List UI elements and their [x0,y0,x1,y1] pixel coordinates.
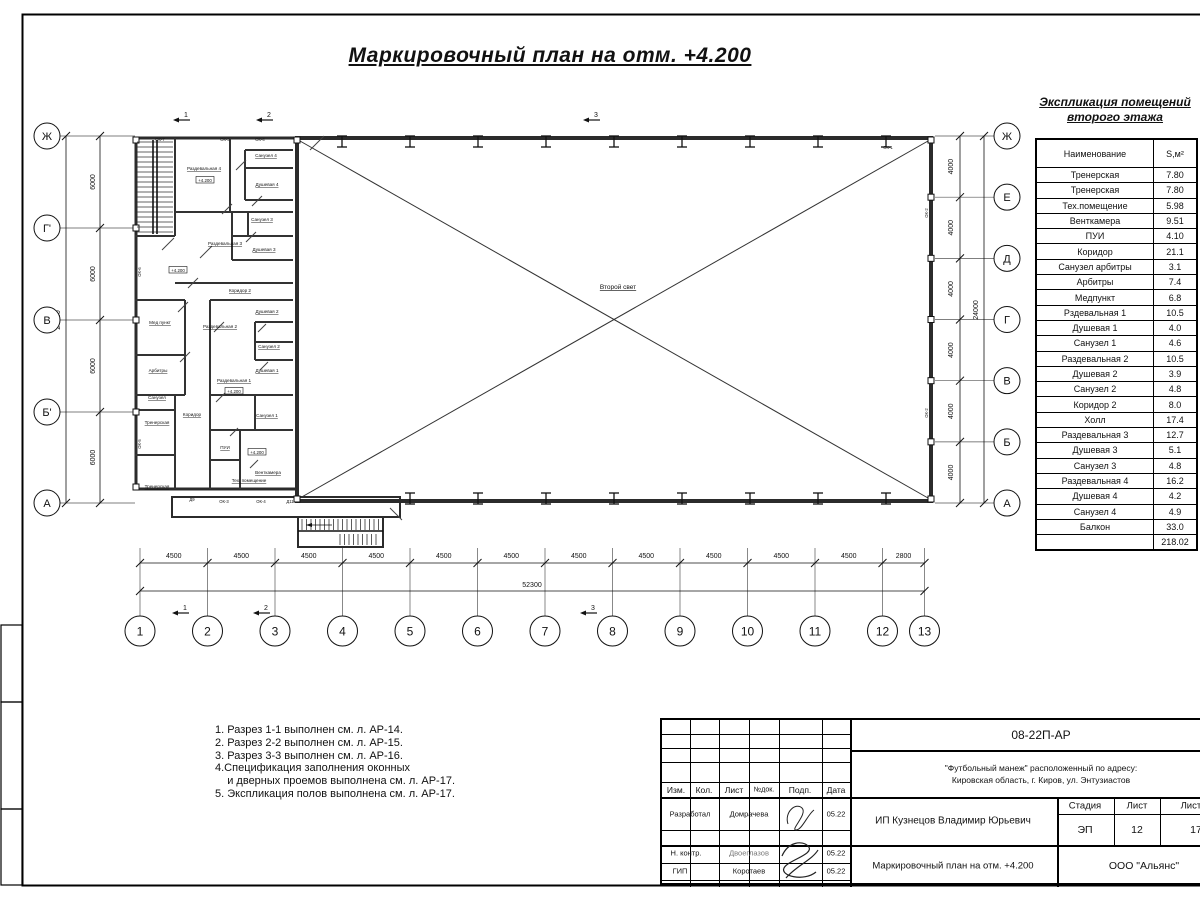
room-area-cell: 8.0 [1154,397,1198,412]
room-name-cell: Душевая 2 [1036,366,1154,381]
dim-label: 2800 [896,553,912,560]
opening-tag: ОК-2 [924,208,929,218]
opening-tag: ОК-2 [924,408,929,418]
axis-bubble-bottom-label: 9 [677,624,684,638]
axis-bubble-left-label: А [43,498,51,510]
tb-address-line1: "Футбольный манеж" расположенный по адре… [945,763,1138,773]
dim-label: 6000 [90,358,97,374]
level-mark: +4.200 [171,268,185,273]
room-label: Санузел 4 [255,153,277,158]
tb-col-list: Лист [725,785,743,795]
wall-column-square [928,194,934,200]
section-marker-number: 3 [591,605,595,612]
wall-column-square [928,137,934,143]
dim-label: 4000 [948,159,955,175]
dim-label: 4000 [948,465,955,481]
room-area-cell: 7.80 [1154,168,1198,183]
hall-label: Второй свет [600,283,636,291]
room-name-cell: Тех.помещение [1036,198,1154,213]
dim-label: 4500 [638,553,654,560]
section-marker-number: 1 [184,112,188,119]
explication-row: Тех.помещение5.98 [1036,198,1197,213]
room-label: Венткамера [255,470,281,475]
dim-label: 4500 [436,553,452,560]
tb-sheets-label: Листов [1181,801,1200,812]
section-marker-number: 3 [594,112,598,119]
wall-column-square [294,496,300,502]
note-line: 3. Разрез 3-3 выполнен см. л. АР-16. [215,750,455,763]
room-area-cell: 3.1 [1154,259,1198,274]
room-name-cell: Тренерская [1036,168,1154,183]
axis-bubble-right-label: Б [1003,437,1010,449]
wall-column-square [928,496,934,502]
opening-tag: ОК-4 [256,499,266,504]
axis-bubble-right-label: В [1003,376,1010,388]
opening-tag: ОК-5 [137,439,142,449]
axis-bubble-bottom-label: 7 [542,624,549,638]
room-area-cell: 4.2 [1154,489,1198,504]
explication-title-line2: второго этажа [1030,110,1200,125]
room-name-cell: Тренерская [1036,183,1154,198]
axis-bubble-right-label: Ж [1002,131,1012,143]
room-label: Коридор [183,412,202,417]
axis-bubble-right-label: Г [1004,314,1010,326]
room-area-cell: 5.1 [1154,443,1198,458]
tb-client: ИП Кузнецов Владимир Юрьевич [875,816,1031,827]
room-label: Арбитры [149,368,168,373]
tb-stage-label: Стадия [1069,801,1101,812]
wall-column-square [133,225,139,231]
dim-label: 4000 [948,403,955,419]
room-name-cell: Душевая 1 [1036,320,1154,335]
room-area-cell: 3.9 [1154,366,1198,381]
tb-col-ndoc: №док. [754,787,775,794]
level-mark: +4.200 [250,450,264,455]
tb-col-podp: Подп. [789,785,812,795]
explication-title-line1: Экспликация помещений [1030,95,1200,110]
signature-checker [778,838,822,884]
room-label: Раздевальная 1 [217,378,252,383]
tb-role-0: Разработал [670,810,711,819]
wall-column-square [928,317,934,323]
explication-row: Санузел 24.8 [1036,382,1197,397]
room-label: Душевая 3 [252,247,275,252]
dim-label: 4500 [166,553,182,560]
section-marker-arrow [172,611,178,616]
dim-label: 4500 [368,553,384,560]
explication-row: Раздевальная 210.5 [1036,351,1197,366]
room-label: Душевая 4 [255,182,278,187]
wall-column-square [133,409,139,415]
explication-row: Венткамера9.51 [1036,213,1197,228]
explication-row: Раздевальная 312.7 [1036,428,1197,443]
tb-role-1: Н. контр. [671,849,702,858]
room-label: Душевая 1 [255,368,278,373]
tb-address-line2: Кировская область, г. Киров, ул. Энтузиа… [952,775,1130,785]
room-area-cell: 7.4 [1154,275,1198,290]
tb-stage-value: ЭП [1077,824,1092,836]
room-name-cell: Коридор 2 [1036,397,1154,412]
tb-col-izm: Изм. [667,785,685,795]
axis-bubble-left-label: В [43,315,50,327]
explication-header-name: Наименование [1036,139,1154,168]
door-swings [162,136,402,520]
opening-tag: ОК-4 [255,137,265,142]
axis-bubble-bottom-label: 10 [741,624,755,638]
room-name-cell: Санузел 2 [1036,382,1154,397]
drawing-sheet: 6000600060006000240004000400040004000400… [0,0,1200,900]
note-line: 2. Разрез 2-2 выполнен см. л. АР-15. [215,737,455,750]
explication-row: Душевая 23.9 [1036,366,1197,381]
explication-table: Наименование S,м² Тренерская7.80Тренерск… [1035,138,1198,551]
tb-name-2: Коротаев [733,867,765,876]
room-name-cell: Коридор [1036,244,1154,259]
room-label: Санузел 1 [256,413,278,418]
dim-total-bottom: 52300 [522,582,542,589]
opening-tag: ОК-7 [155,137,165,142]
room-name-cell: Медпункт [1036,290,1154,305]
axis-bubble-right-label: Е [1003,192,1010,204]
axis-bubble-right-label: Д [1003,253,1011,265]
room-label: Санузел 2 [258,344,280,349]
axis-bubble-bottom-label: 3 [272,624,279,638]
room-name-cell: Душевая 3 [1036,443,1154,458]
explication-row: Тренерская7.80 [1036,168,1197,183]
section-marker-number: 2 [264,605,268,612]
opening-tag: ОК-3 [219,499,229,504]
room-name-cell: Санузел 4 [1036,504,1154,519]
explication-row: Санузел 44.9 [1036,504,1197,519]
note-line: и дверных проемов выполнена см. л. АР-17… [215,775,455,788]
dim-label: 4500 [773,553,789,560]
axis-bubble-bottom-label: 6 [474,624,481,638]
opening-tag: ОК-1 [883,145,893,150]
explication-row: Раздевальная 416.2 [1036,473,1197,488]
room-area-cell: 9.51 [1154,213,1198,228]
room-label: Санузел 3 [251,217,273,222]
room-area-cell: 4.0 [1154,320,1198,335]
room-name-cell: Венткамера [1036,213,1154,228]
tb-role-2: ГИП [673,867,688,876]
room-name-cell [1036,535,1154,551]
explication-header-row: Наименование S,м² [1036,139,1197,168]
room-label: Тренерская [145,420,170,425]
wall-column-square [133,317,139,323]
explication-title: Экспликация помещений второго этажа [1030,95,1200,125]
margin-boxes [1,625,22,885]
axis-bubble-bottom-label: 4 [339,624,346,638]
room-label: Раздевальная 4 [187,166,222,171]
room-area-cell: 16.2 [1154,473,1198,488]
dim-label: 6000 [90,174,97,190]
tb-sheets-value: 17 [1190,824,1200,836]
wall-column-square [928,439,934,445]
tb-name-0: Домрачева [730,810,769,819]
room-name-cell: Душевая 4 [1036,489,1154,504]
wall-column-square [928,255,934,261]
room-area-cell: 12.7 [1154,428,1198,443]
axis-bubble-left-label: Г' [43,223,51,235]
room-area-cell: 4.10 [1154,229,1198,244]
explication-row: Душевая 14.0 [1036,320,1197,335]
room-name-cell: Раздевальная 4 [1036,473,1154,488]
tb-date-0: 05.22 [827,810,846,819]
room-area-cell: 6.8 [1154,290,1198,305]
room-area-cell: 10.5 [1154,305,1198,320]
dim-total-right: 24000 [973,300,980,320]
section-marker-number: 1 [183,605,187,612]
dim-label: 4500 [571,553,587,560]
dim-label: 4000 [948,281,955,297]
explication-row: Душевая 35.1 [1036,443,1197,458]
opening-tag: Д11 [286,499,294,504]
explication-row: Балкон33.0 [1036,519,1197,534]
section-marker-arrow [253,611,259,616]
room-name-cell: Арбитры [1036,275,1154,290]
room-area-cell: 17.4 [1154,412,1198,427]
room-area-cell: 10.5 [1154,351,1198,366]
level-mark: +4.200 [198,178,212,183]
axis-bubble-bottom-label: 1 [137,624,144,638]
room-name-cell: Холл [1036,412,1154,427]
section-marker-arrow [173,118,179,123]
section-marker-arrow [583,118,589,123]
opening-tag: Д9 [189,497,195,502]
room-label: Санузел [148,395,166,400]
room-area-cell: 4.9 [1154,504,1198,519]
room-area-cell: 5.98 [1154,198,1198,213]
room-area-cell: 4.8 [1154,458,1198,473]
wall-column-square [133,484,139,490]
dim-label: 4000 [948,220,955,236]
dim-label: 4500 [233,553,249,560]
explication-row: 218.02 [1036,535,1197,551]
tb-name-1: Двоеглазов [729,849,769,858]
explication-row: ПУИ4.10 [1036,229,1197,244]
room-label: Раздевальная 3 [208,241,243,246]
room-label: Мед пункт [149,320,172,325]
room-name-cell: Санузел арбитры [1036,259,1154,274]
explication-row: Санузел 14.6 [1036,336,1197,351]
room-label: Тренерская [145,484,170,489]
dim-label: 4500 [301,553,317,560]
tb-project-code: 08-22П-АР [1011,728,1070,742]
room-label: Коридор 2 [229,288,251,293]
room-label: Тех. помещение [232,478,267,483]
room-label: Душевая 2 [255,309,278,314]
tb-col-data: Дата [827,785,846,795]
tb-col-kol: Кол. [696,785,713,795]
section-marker-arrow [256,118,262,123]
explication-row: Душевая 44.2 [1036,489,1197,504]
explication-row: Тренерская7.80 [1036,183,1197,198]
axis-bubble-bottom-label: 13 [918,624,932,638]
dim-label: 4500 [841,553,857,560]
axis-bubble-bottom-label: 11 [809,624,822,638]
explication-row: Рздевальная 110.5 [1036,305,1197,320]
room-area-cell: 4.8 [1154,382,1198,397]
room-name-cell: Раздевальная 2 [1036,351,1154,366]
explication-row: Холл17.4 [1036,412,1197,427]
room-area-cell: 7.80 [1154,183,1198,198]
room-area-cell: 218.02 [1154,535,1198,551]
wall-column-square [294,137,300,143]
note-line: 4.Спецификация заполнения оконных [215,762,455,775]
explication-row: Санузел 34.8 [1036,458,1197,473]
axis-bubble-bottom-label: 2 [204,624,211,638]
axis-bubble-left-label: Б' [42,407,51,419]
axis-bubble-right-label: А [1003,498,1011,510]
tb-sheet-value: 12 [1131,824,1143,836]
tb-sheet-label: Лист [1127,801,1148,812]
room-name-cell: ПУИ [1036,229,1154,244]
room-name-cell: Санузел 3 [1036,458,1154,473]
tb-company: ООО "Альянс" [1109,860,1179,872]
room-label: ПУИ [220,445,230,450]
drawing-title: Маркировочный план на отм. +4.200 [290,44,810,68]
room-name-cell: Рздевальная 1 [1036,305,1154,320]
room-area-cell: 4.6 [1154,336,1198,351]
axis-bubble-bottom-label: 5 [407,624,414,638]
dim-label: 6000 [90,266,97,282]
hall-cross [300,141,928,498]
notes-list: 1. Разрез 1-1 выполнен см. л. АР-14.2. Р… [215,724,455,801]
opening-tag: ОК-6 [137,267,142,277]
opening-tag: ОК-3 [220,137,230,142]
tb-date-1: 05.22 [827,849,846,858]
explication-row: Арбитры7.4 [1036,275,1197,290]
note-line: 1. Разрез 1-1 выполнен см. л. АР-14. [215,724,455,737]
tb-date-2: 05.22 [827,867,846,876]
section-marker-arrow [580,611,586,616]
room-name-cell: Раздевальная 3 [1036,428,1154,443]
section-marker-number: 2 [267,112,271,119]
axis-bubble-bottom-label: 8 [609,624,616,638]
dim-label: 4000 [948,342,955,358]
axis-bubble-left-label: Ж [42,131,52,143]
dim-label: 4500 [503,553,519,560]
signature-developer [782,800,820,832]
tb-doc-title: Маркировочный план на отм. +4.200 [872,861,1033,872]
wall-column-square [928,378,934,384]
dim-label: 4500 [706,553,722,560]
dim-label: 6000 [90,450,97,466]
room-name-cell: Балкон [1036,519,1154,534]
explication-row: Коридор21.1 [1036,244,1197,259]
room-label: Раздевальная 2 [203,324,238,329]
note-line: 5. Экспликация полов выполнена см. л. АР… [215,788,455,801]
explication-row: Коридор 28.0 [1036,397,1197,412]
generated-plan-annotations: 6000600060006000240004000400040004000400… [34,112,1020,646]
room-area-cell: 33.0 [1154,519,1198,534]
room-name-cell: Санузел 1 [1036,336,1154,351]
explication-row: Медпункт6.8 [1036,290,1197,305]
explication-header-area: S,м² [1154,139,1198,168]
axis-bubble-bottom-label: 12 [876,624,890,638]
title-block: Изм. Кол. Лист №док. Подп. Дата Разработ… [660,718,1200,885]
level-mark: +4.200 [227,389,241,394]
explication-row: Санузел арбитры3.1 [1036,259,1197,274]
room-area-cell: 21.1 [1154,244,1198,259]
